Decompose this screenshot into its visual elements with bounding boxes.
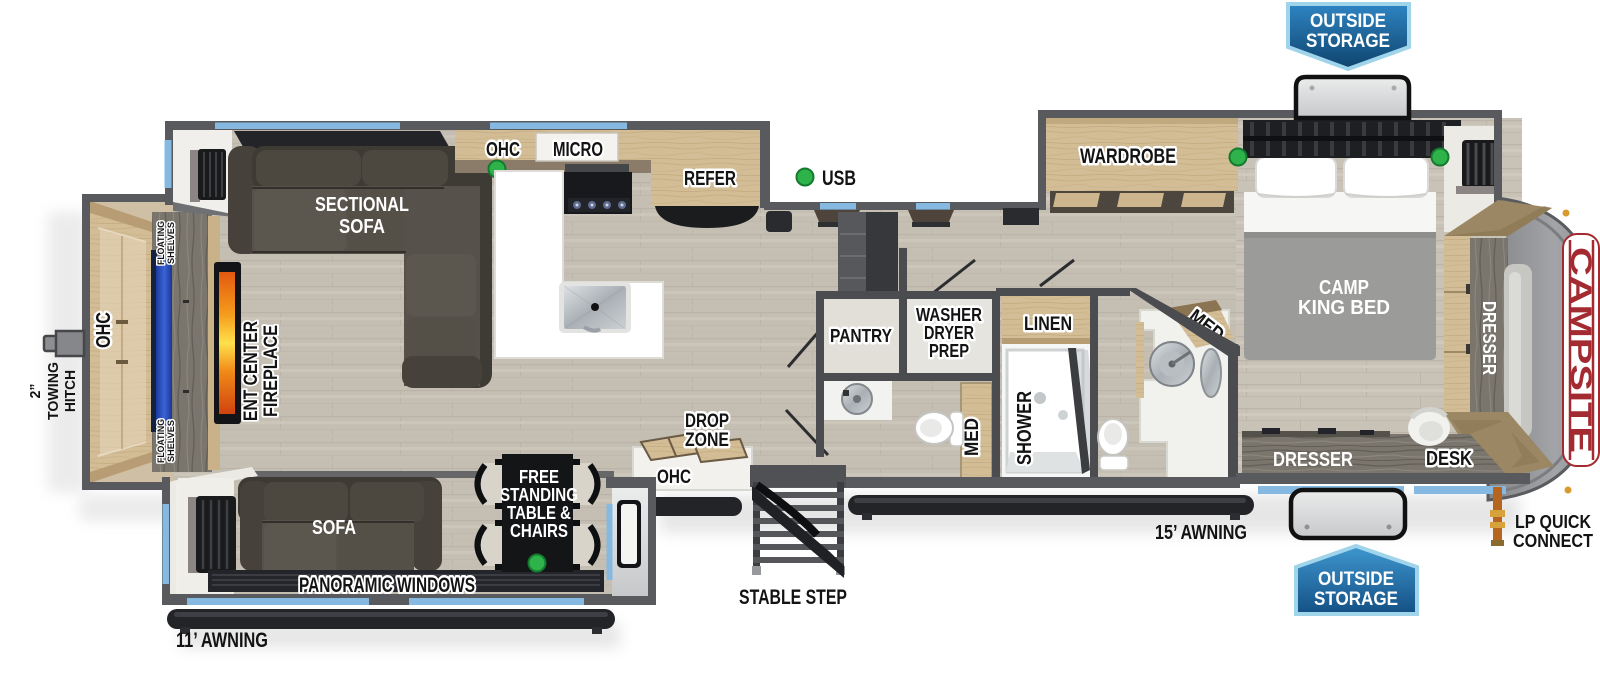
svg-text:HITCH: HITCH	[62, 370, 79, 412]
svg-text:OHC: OHC	[657, 467, 691, 488]
svg-text:PREP: PREP	[929, 341, 969, 361]
svg-text:CAMP: CAMP	[1319, 277, 1369, 299]
svg-text:SHELVES: SHELVES	[166, 222, 177, 264]
svg-text:PANTRY: PANTRY	[830, 326, 892, 346]
svg-text:DRESSER: DRESSER	[1479, 301, 1499, 375]
svg-text:STORAGE: STORAGE	[1306, 31, 1390, 52]
svg-text:MICRO: MICRO	[553, 139, 603, 161]
svg-text:MED: MED	[962, 418, 983, 456]
svg-text:KING BED: KING BED	[1298, 297, 1390, 319]
svg-text:DROP: DROP	[685, 411, 729, 432]
svg-text:CAMPSITE: CAMPSITE	[1564, 247, 1597, 453]
svg-text:TABLE &: TABLE &	[507, 503, 571, 523]
svg-text:FREE: FREE	[519, 467, 559, 487]
svg-text:SECTIONAL: SECTIONAL	[315, 194, 409, 216]
svg-text:WASHER: WASHER	[916, 305, 982, 325]
svg-text:ENT CENTER: ENT CENTER	[241, 321, 262, 421]
svg-text:SHOWER: SHOWER	[1014, 391, 1036, 465]
svg-text:OUTSIDE: OUTSIDE	[1310, 11, 1386, 32]
svg-text:USB: USB	[822, 167, 856, 190]
svg-text:WARDROBE: WARDROBE	[1080, 145, 1176, 168]
svg-text:DRYER: DRYER	[924, 323, 974, 343]
svg-text:OUTSIDE: OUTSIDE	[1318, 569, 1394, 590]
svg-text:ZONE: ZONE	[685, 430, 729, 451]
svg-text:DESK: DESK	[1426, 448, 1472, 470]
svg-text:FIREPLACE: FIREPLACE	[261, 325, 282, 417]
svg-text:OHC: OHC	[486, 139, 520, 161]
svg-text:SHELVES: SHELVES	[166, 420, 177, 462]
svg-text:15’ AWNING: 15’ AWNING	[1155, 522, 1247, 544]
svg-text:LP QUICK: LP QUICK	[1515, 512, 1591, 532]
svg-text:OHC: OHC	[93, 312, 115, 348]
svg-text:DRESSER: DRESSER	[1273, 449, 1353, 471]
svg-text:TOWING: TOWING	[45, 362, 62, 420]
svg-text:CHAIRS: CHAIRS	[510, 521, 568, 541]
svg-text:11’ AWNING: 11’ AWNING	[176, 629, 268, 652]
svg-text:SOFA: SOFA	[312, 517, 356, 539]
svg-text:CONNECT: CONNECT	[1513, 531, 1593, 551]
svg-text:STORAGE: STORAGE	[1314, 589, 1398, 610]
svg-text:REFER: REFER	[684, 168, 736, 190]
svg-text:STANDING: STANDING	[500, 485, 578, 505]
svg-text:STABLE STEP: STABLE STEP	[739, 586, 847, 609]
svg-text:LINEN: LINEN	[1024, 314, 1072, 335]
svg-text:PANORAMIC WINDOWS: PANORAMIC WINDOWS	[299, 574, 475, 597]
svg-text:SOFA: SOFA	[339, 216, 385, 238]
svg-text:2”: 2”	[27, 384, 44, 399]
